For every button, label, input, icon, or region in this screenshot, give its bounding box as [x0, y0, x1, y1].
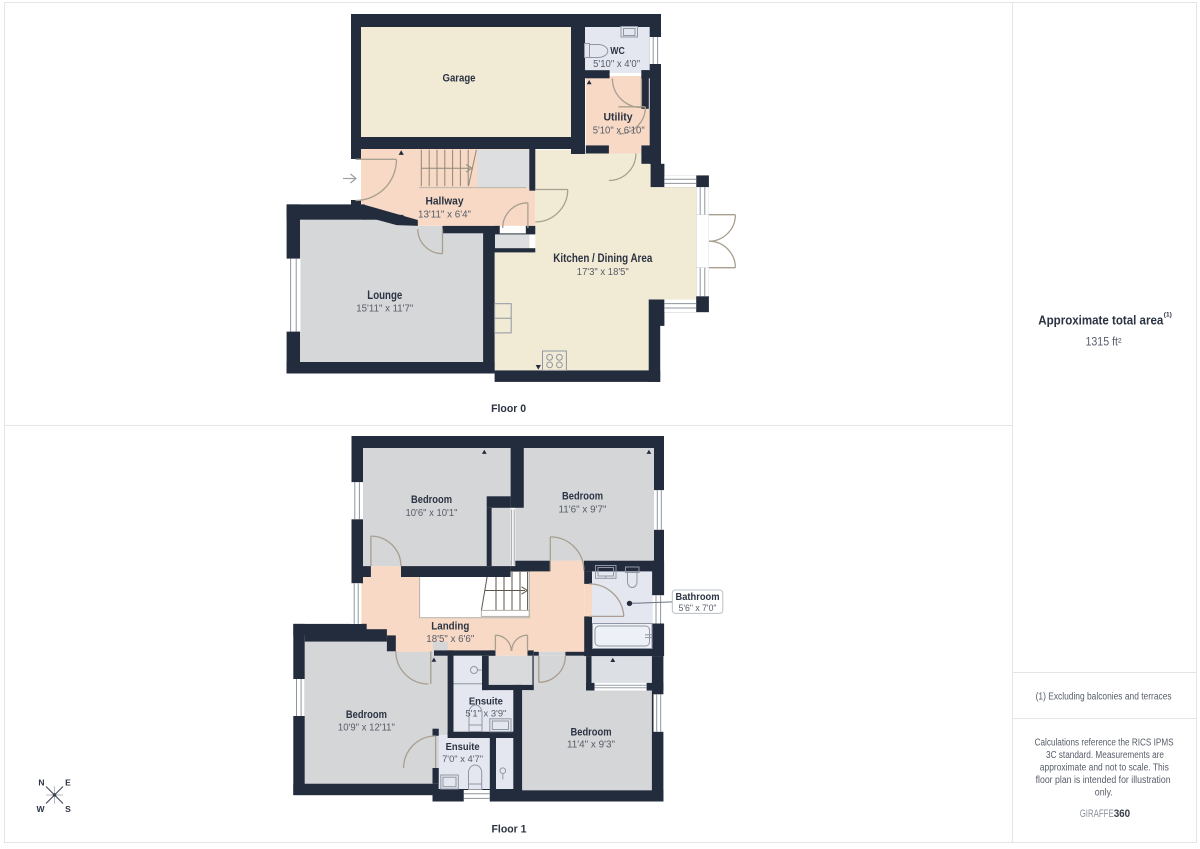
- svg-text:Bedroom: Bedroom: [562, 491, 603, 503]
- svg-text:Calculations reference the RIC: Calculations reference the RICS IPMS: [1035, 738, 1174, 749]
- svg-text:Ensuite: Ensuite: [446, 741, 480, 753]
- svg-text:Floor 0: Floor 0: [491, 403, 526, 415]
- svg-text:11'6" x 9'7": 11'6" x 9'7": [559, 504, 607, 515]
- svg-text:10'6" x 10'1": 10'6" x 10'1": [406, 508, 458, 519]
- svg-text:Landing: Landing: [431, 620, 469, 632]
- svg-text:15'11" x 11'7": 15'11" x 11'7": [356, 304, 413, 315]
- svg-text:Bedroom: Bedroom: [411, 494, 452, 506]
- svg-text:10'9" x 12'11": 10'9" x 12'11": [338, 722, 395, 733]
- svg-text:1315 ft²: 1315 ft²: [1086, 337, 1122, 349]
- svg-text:WC: WC: [610, 45, 625, 57]
- svg-text:approximate and not to scale.: approximate and not to scale. This: [1040, 763, 1169, 774]
- svg-text:Bathroom: Bathroom: [676, 591, 720, 603]
- svg-text:Ensuite: Ensuite: [469, 696, 503, 708]
- svg-text:only.: only.: [1095, 788, 1113, 799]
- svg-text:Bedroom: Bedroom: [571, 726, 612, 738]
- svg-text:5'1" x 3'9": 5'1" x 3'9": [465, 709, 506, 720]
- svg-text:Utility: Utility: [604, 112, 634, 124]
- svg-text:E: E: [65, 778, 71, 788]
- svg-text:3C standard. Measurements are: 3C standard. Measurements are: [1046, 750, 1164, 761]
- svg-text:5'10" x 4'0": 5'10" x 4'0": [593, 59, 640, 70]
- svg-text:13'11" x 6'4": 13'11" x 6'4": [418, 209, 471, 220]
- svg-text:7'0" x 4'7": 7'0" x 4'7": [442, 754, 483, 765]
- svg-text:360: 360: [1114, 808, 1131, 820]
- svg-text:W: W: [36, 804, 45, 814]
- svg-text:S: S: [65, 804, 71, 814]
- svg-text:5'6" x 7'0": 5'6" x 7'0": [679, 603, 717, 614]
- svg-text:Floor 1: Floor 1: [492, 824, 527, 836]
- svg-text:floor plan is intended for ill: floor plan is intended for illustration: [1036, 775, 1171, 786]
- svg-text:GIRAFFE: GIRAFFE: [1080, 808, 1114, 820]
- svg-text:(1): (1): [1164, 312, 1172, 319]
- svg-text:Garage: Garage: [443, 73, 476, 85]
- svg-text:18'5" x 6'6": 18'5" x 6'6": [426, 634, 474, 645]
- svg-text:5'10" x 6'10": 5'10" x 6'10": [593, 125, 645, 136]
- svg-text:(1) Excluding balconies and te: (1) Excluding balconies and terraces: [1036, 692, 1172, 703]
- svg-text:11'4" x 9'3": 11'4" x 9'3": [567, 740, 615, 751]
- svg-text:Kitchen / Dining Area: Kitchen / Dining Area: [553, 253, 653, 265]
- svg-text:Bedroom: Bedroom: [346, 709, 387, 721]
- svg-text:Lounge: Lounge: [367, 290, 402, 302]
- svg-text:Approximate total area: Approximate total area: [1038, 314, 1164, 328]
- svg-text:17'3" x 18'5": 17'3" x 18'5": [577, 267, 629, 278]
- svg-text:Hallway: Hallway: [426, 196, 465, 208]
- svg-text:N: N: [38, 778, 44, 788]
